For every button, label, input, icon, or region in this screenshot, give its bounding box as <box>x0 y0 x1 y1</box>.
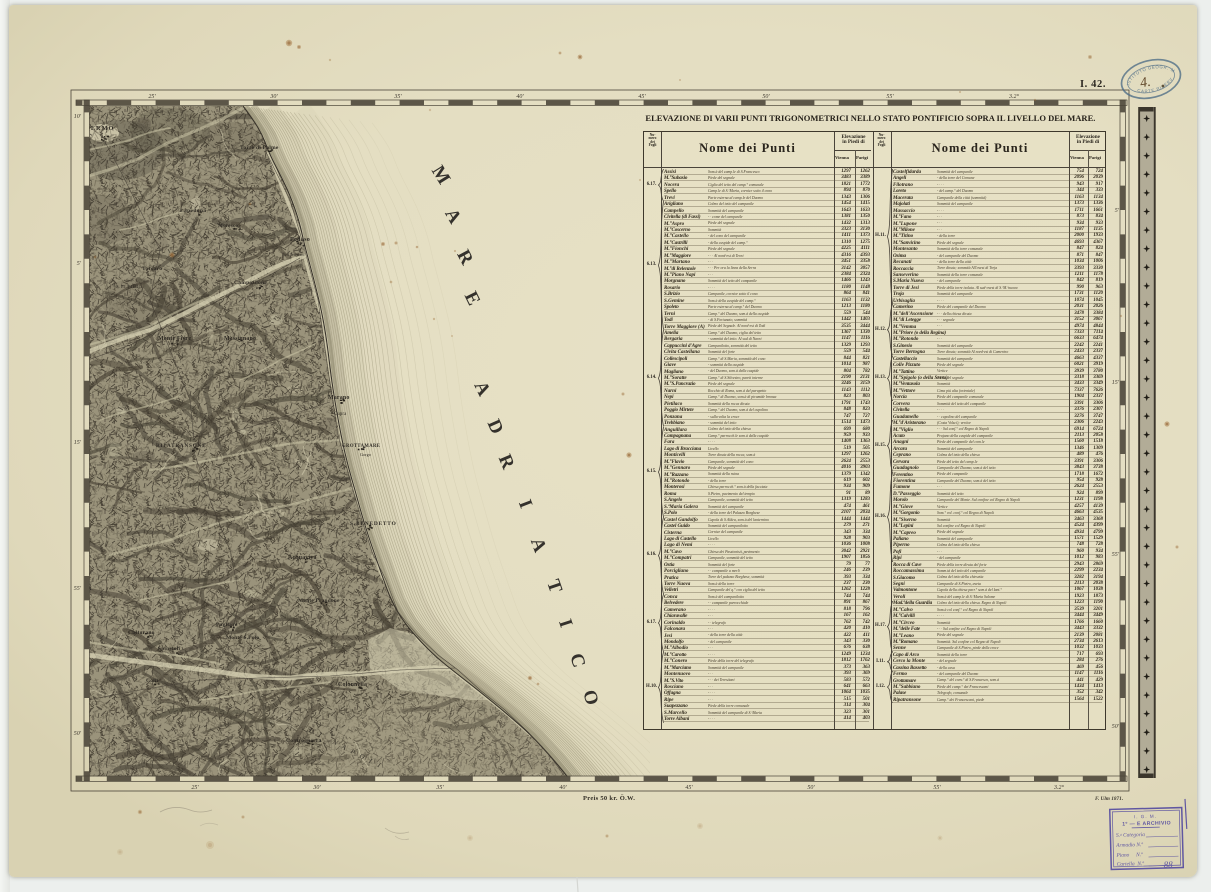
svg-text:Campofilone: Campofilone <box>234 280 267 286</box>
svg-text:Piano N.º: Piano N.º <box>1115 852 1143 859</box>
svg-text:Monte Fiore: Monte Fiore <box>158 336 192 342</box>
svg-text:50': 50' <box>807 785 815 791</box>
svg-text:I. G. M.: I. G. M. <box>1134 814 1157 820</box>
svg-text:5': 5' <box>77 261 82 267</box>
svg-text:Massignano: Massignano <box>224 336 256 342</box>
svg-text:Colle: Colle <box>210 533 217 537</box>
svg-text:Torcaro: Torcaro <box>142 266 162 272</box>
svg-text:Pagliare: Pagliare <box>216 622 238 628</box>
svg-text:40': 40' <box>559 784 567 791</box>
svg-text:30': 30' <box>269 94 278 100</box>
svg-text:GROTTAMARE: GROTTAMARE <box>342 444 380 449</box>
svg-text:Castorano: Castorano <box>128 630 155 636</box>
svg-text:Colonnella: Colonnella <box>338 682 367 688</box>
svg-text:Pedaso: Pedaso <box>290 237 310 243</box>
svg-text:C.Bianca: C.Bianca <box>156 289 168 294</box>
svg-text:25': 25' <box>148 94 156 100</box>
svg-text:D: D <box>483 416 508 437</box>
svg-text:T: T <box>542 577 566 596</box>
svg-text:Colli: Colli <box>146 678 159 684</box>
svg-text:I: I <box>554 617 576 631</box>
svg-text:15': 15' <box>1112 380 1120 386</box>
svg-text:Marano: Marano <box>328 395 350 401</box>
svg-text:I: I <box>514 497 536 511</box>
svg-text:R: R <box>452 246 477 268</box>
svg-text:30': 30' <box>312 785 321 791</box>
svg-text:50': 50' <box>1112 724 1120 730</box>
svg-text:55': 55' <box>74 586 82 592</box>
svg-text:Lapedona: Lapedona <box>180 208 206 214</box>
svg-text:Gorgo: Gorgo <box>360 452 371 457</box>
svg-text:S.a Categoria: S.a Categoria <box>1116 832 1146 839</box>
svg-text:O: O <box>578 688 602 708</box>
svg-text:45': 45' <box>638 93 646 100</box>
svg-text:Spinetoli: Spinetoli <box>158 646 180 652</box>
svg-text:S.Maria: S.Maria <box>394 701 404 705</box>
svg-text:S.d.Telegrafo: S.d.Telegrafo <box>284 253 305 257</box>
svg-text:40': 40' <box>516 93 524 100</box>
svg-text:S.Pietro: S.Pietro <box>251 547 261 552</box>
svg-text:M.Rosso: M.Rosso <box>272 431 284 435</box>
svg-text:55': 55' <box>1112 552 1120 558</box>
svg-text:3.2°: 3.2° <box>1008 93 1020 100</box>
svg-text:S.ELPIDIO: S.ELPIDIO <box>116 284 143 289</box>
svg-text:Moresco: Moresco <box>218 223 239 229</box>
svg-text:3.2°: 3.2° <box>1053 784 1065 791</box>
svg-text:35': 35' <box>435 785 444 791</box>
svg-text:M: M <box>427 162 454 188</box>
svg-text:25': 25' <box>191 785 199 791</box>
svg-text:50': 50' <box>762 94 770 100</box>
svg-text:45': 45' <box>685 784 693 791</box>
svg-text:S.BENEDETTO: S.BENEDETTO <box>350 521 397 527</box>
svg-text:C: C <box>565 651 589 670</box>
svg-text:15': 15' <box>74 440 82 446</box>
svg-text:Cas.le: Cas.le <box>180 249 188 253</box>
svg-text:55': 55' <box>886 94 894 100</box>
svg-text:10': 10' <box>74 114 82 120</box>
svg-text:Casale: Casale <box>177 425 186 429</box>
svg-text:A: A <box>469 378 494 400</box>
svg-text:1º — E ARCHIVIO: 1º — E ARCHIVIO <box>1122 820 1171 827</box>
svg-text:Monte S.Polo: Monte S.Polo <box>226 635 259 641</box>
svg-text:A: A <box>440 205 465 228</box>
svg-text:S.Croce: S.Croce <box>271 311 281 315</box>
svg-text:A: A <box>526 535 551 555</box>
svg-text:35': 35' <box>393 94 402 100</box>
svg-text:88: 88 <box>1164 859 1174 869</box>
svg-text:R: R <box>494 451 519 472</box>
svg-text:4.: 4. <box>1139 75 1152 92</box>
svg-text:Armadio N.º: Armadio N.º <box>1115 842 1143 849</box>
svg-text:5': 5' <box>1115 208 1120 214</box>
svg-text:Acquaviva: Acquaviva <box>288 555 317 561</box>
svg-text:Cupra: Cupra <box>334 412 347 417</box>
svg-text:Controguerra: Controguerra <box>286 738 322 744</box>
svg-text:55': 55' <box>933 785 941 791</box>
svg-text:Torre: Torre <box>193 139 200 143</box>
svg-text:Torre di Palme: Torre di Palme <box>240 145 279 151</box>
svg-text:Cartella N.º: Cartella N.º <box>1117 861 1145 868</box>
svg-text:FERMO: FERMO <box>86 125 114 132</box>
svg-text:RIPATRANSONE: RIPATRANSONE <box>156 443 206 449</box>
svg-text:E: E <box>460 288 484 309</box>
svg-text:50': 50' <box>74 731 82 737</box>
svg-text:Monte Prandone: Monte Prandone <box>298 598 340 604</box>
